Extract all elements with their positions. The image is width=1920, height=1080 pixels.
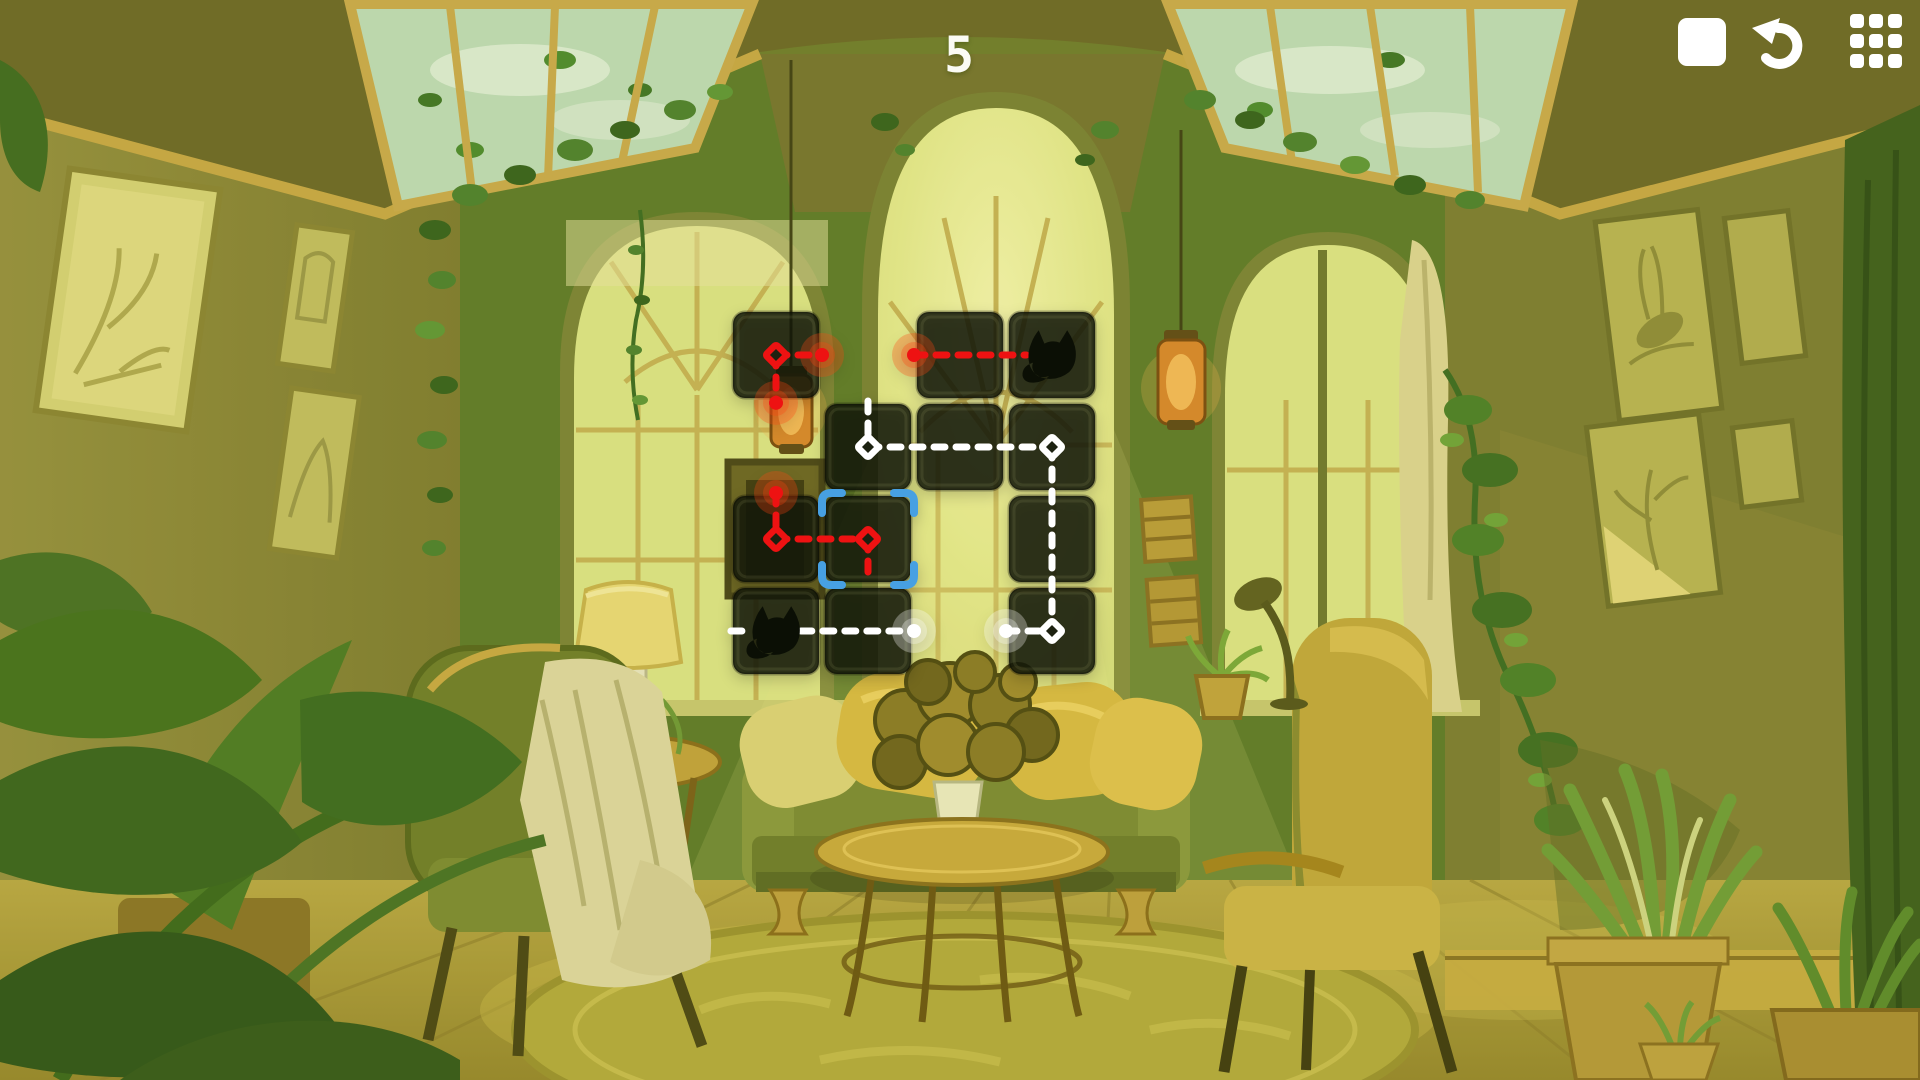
path-endpoint-dot[interactable] bbox=[769, 486, 783, 500]
board-button[interactable] bbox=[1674, 10, 1732, 74]
path-node-diamond bbox=[1041, 436, 1062, 457]
grid-icon bbox=[1844, 6, 1908, 78]
square-icon bbox=[1678, 18, 1726, 66]
undo-button[interactable] bbox=[1750, 10, 1808, 74]
path-node-diamond bbox=[765, 344, 786, 365]
path-node-diamond bbox=[1041, 620, 1062, 641]
path-endpoint-dot[interactable] bbox=[815, 348, 829, 362]
path-endpoint-dot[interactable] bbox=[907, 348, 921, 362]
path-endpoint-dot[interactable] bbox=[999, 624, 1013, 638]
game-screen: 5 bbox=[0, 0, 1920, 1080]
levels-button[interactable] bbox=[1844, 6, 1902, 70]
path-endpoint-dot[interactable] bbox=[907, 624, 921, 638]
puzzle-board bbox=[0, 0, 1920, 1080]
path-endpoint-dot[interactable] bbox=[769, 396, 783, 410]
path-node-diamond bbox=[765, 528, 786, 549]
path-node-diamond bbox=[857, 436, 878, 457]
path-node-diamond bbox=[857, 528, 878, 549]
level-number: 5 bbox=[0, 26, 1920, 84]
undo-icon bbox=[1750, 10, 1808, 74]
